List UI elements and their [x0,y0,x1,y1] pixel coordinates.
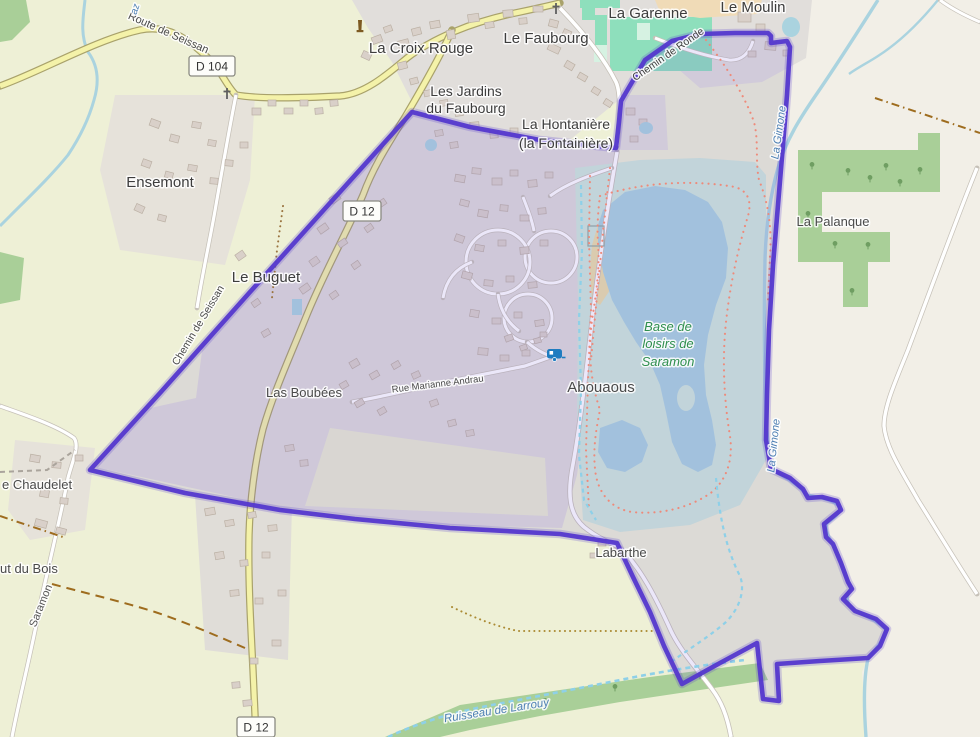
map-label: Les Jardins [430,83,502,99]
building [214,551,224,559]
moulin-pond [782,17,800,37]
road-ref-shield-text: D 12 [243,721,269,735]
building [29,454,40,463]
map-canvas[interactable]: D 104D 12D 12La GarenneLe MoulinLa Croix… [0,0,980,737]
road-ref-shield: D 104 [189,56,235,76]
building [192,121,202,128]
building [243,700,252,707]
building [278,590,286,596]
map-label: Abouaous [567,379,635,396]
building [60,498,68,505]
building [485,21,495,28]
building [429,20,440,29]
map-label: ut du Bois [0,561,58,576]
map-label: La Palanque [796,214,869,229]
map-label: loisirs de [642,336,693,351]
pitch-a [582,4,595,20]
building [225,519,235,526]
map-label: La Hontanière [522,116,610,132]
building [284,108,293,114]
map-label: Saramon [642,354,695,369]
road-ref-shield-text: D 104 [196,60,228,74]
building [188,164,198,171]
building [262,552,270,558]
building [240,560,248,567]
building [208,139,217,146]
building [75,455,83,461]
map-label: (la Fontainière) [519,135,613,151]
building [272,640,281,646]
road-ref-shield-text: D 12 [349,205,375,219]
building [330,100,338,107]
building [204,507,215,516]
road-ref-shield: D 12 [237,717,275,737]
map-label: du Faubourg [426,100,505,116]
map-label: Labarthe [595,545,646,560]
building [533,6,543,12]
map-label: Le Buguet [232,269,301,286]
building [300,100,308,106]
building [519,18,527,25]
building [467,13,479,22]
building [248,511,257,518]
pitch-light-b [637,23,650,40]
building [210,178,218,185]
map-label: Las Boubées [266,385,342,400]
building [232,682,240,689]
map-label: Le Faubourg [503,30,588,47]
map-label: La Croix Rouge [369,40,473,57]
building [503,10,514,18]
building [268,525,277,532]
building [446,29,455,39]
building [252,108,261,115]
building [225,160,233,167]
building [240,142,248,148]
map-label: La Garenne [608,5,687,22]
map-label: Le Moulin [720,0,785,16]
building [255,598,263,604]
map-label: Ensemont [126,174,194,191]
map-label: Base de [644,319,692,334]
building [268,100,276,106]
map-viewport[interactable]: D 104D 12D 12La GarenneLe MoulinLa Croix… [0,0,980,737]
map-label: e Chaudelet [2,477,72,492]
area-d12-south-residential [195,495,292,660]
building [315,108,323,115]
road-ref-shield: D 12 [343,201,381,221]
building [230,590,239,597]
building [250,658,258,664]
